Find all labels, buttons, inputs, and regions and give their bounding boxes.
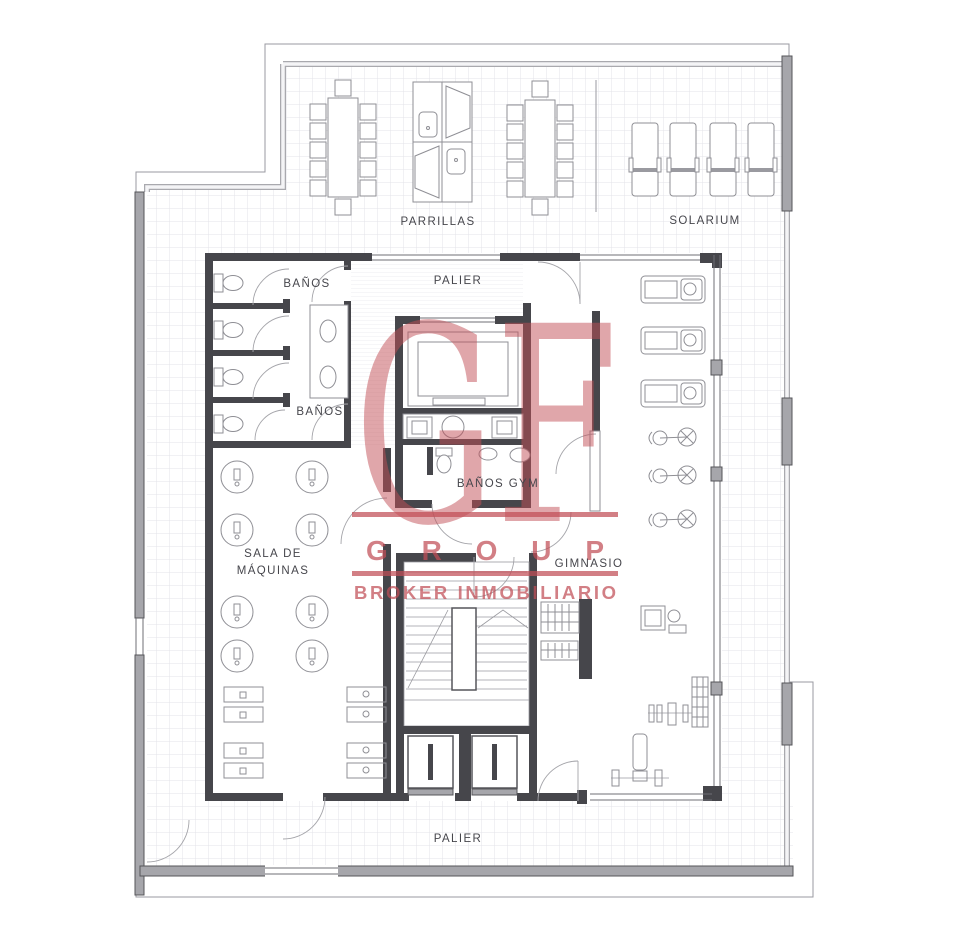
water-tank [296, 640, 328, 672]
room-label-banos-lower: BAÑOS [296, 405, 343, 418]
exercise-bike [649, 510, 696, 528]
electrical-panel [347, 743, 386, 758]
watermark: GF GROUP BROKER INMOBILIARIO [352, 270, 618, 603]
sun-lounger [745, 123, 777, 196]
sun-lounger [629, 123, 661, 196]
electrical-panel [347, 687, 386, 702]
watermark-rule-bottom [352, 571, 618, 576]
elevator-divider-wall [459, 726, 471, 801]
exercise-bike [649, 428, 696, 446]
water-tank [221, 461, 253, 493]
weight-rack [541, 641, 578, 660]
floor-plan-svg: GF GROUP BROKER INMOBILIARIO PARRILLASSO… [0, 0, 969, 950]
room-label-parrillas: PARRILLAS [400, 216, 475, 228]
sun-lounger [707, 123, 739, 196]
stair-landing [452, 608, 476, 690]
toilet-icon [214, 368, 243, 386]
elevator-2 [472, 736, 517, 795]
water-tank [296, 461, 328, 493]
floor-plan-image: GF GROUP BROKER INMOBILIARIO PARRILLASSO… [0, 0, 969, 950]
room-label-banos-gym: BAÑOS GYM [457, 477, 539, 490]
watermark-rule-top [352, 512, 618, 517]
treadmill [641, 327, 705, 354]
workout-bench [611, 734, 669, 786]
parrilla-station [413, 82, 472, 202]
toilet-icon [214, 321, 243, 339]
room-label-sala-line-1: SALA DE [244, 548, 302, 560]
water-tank [296, 596, 328, 628]
room-label-palier-bottom: PALIER [434, 833, 482, 845]
left-outer-wall [135, 192, 144, 895]
electrical-panel [347, 707, 386, 722]
toilet-icon [214, 415, 243, 433]
treadmill [641, 276, 705, 303]
room-label-banos-top: BAÑOS [283, 277, 330, 290]
room-label-palier-top: PALIER [434, 275, 482, 287]
room-label-sala-line-2: MÁQUINAS [237, 564, 310, 577]
gym-wall-stub [579, 599, 592, 679]
room-label-gimnasio: GIMNASIO [555, 558, 624, 570]
electrical-panel [224, 707, 263, 722]
electrical-panel [224, 763, 263, 778]
electrical-panel [224, 743, 263, 758]
electrical-panel [347, 763, 386, 778]
sun-lounger [667, 123, 699, 196]
sink-counter [310, 305, 348, 398]
water-tank [221, 596, 253, 628]
multi-gym-machine [692, 677, 708, 727]
lat-pulldown-machine [641, 606, 686, 633]
electrical-panel [224, 687, 263, 702]
elevator-1 [408, 736, 453, 795]
toilet-icon [214, 274, 243, 292]
weight-rack [541, 602, 579, 633]
room-label-solarium: SOLARIUM [669, 215, 740, 227]
bench-press [648, 703, 692, 725]
treadmill [641, 380, 705, 407]
water-tank [296, 514, 328, 546]
water-tank [221, 640, 253, 672]
exercise-bike [649, 466, 696, 484]
water-tank [221, 514, 253, 546]
bottom-terrace-wall [140, 865, 793, 877]
